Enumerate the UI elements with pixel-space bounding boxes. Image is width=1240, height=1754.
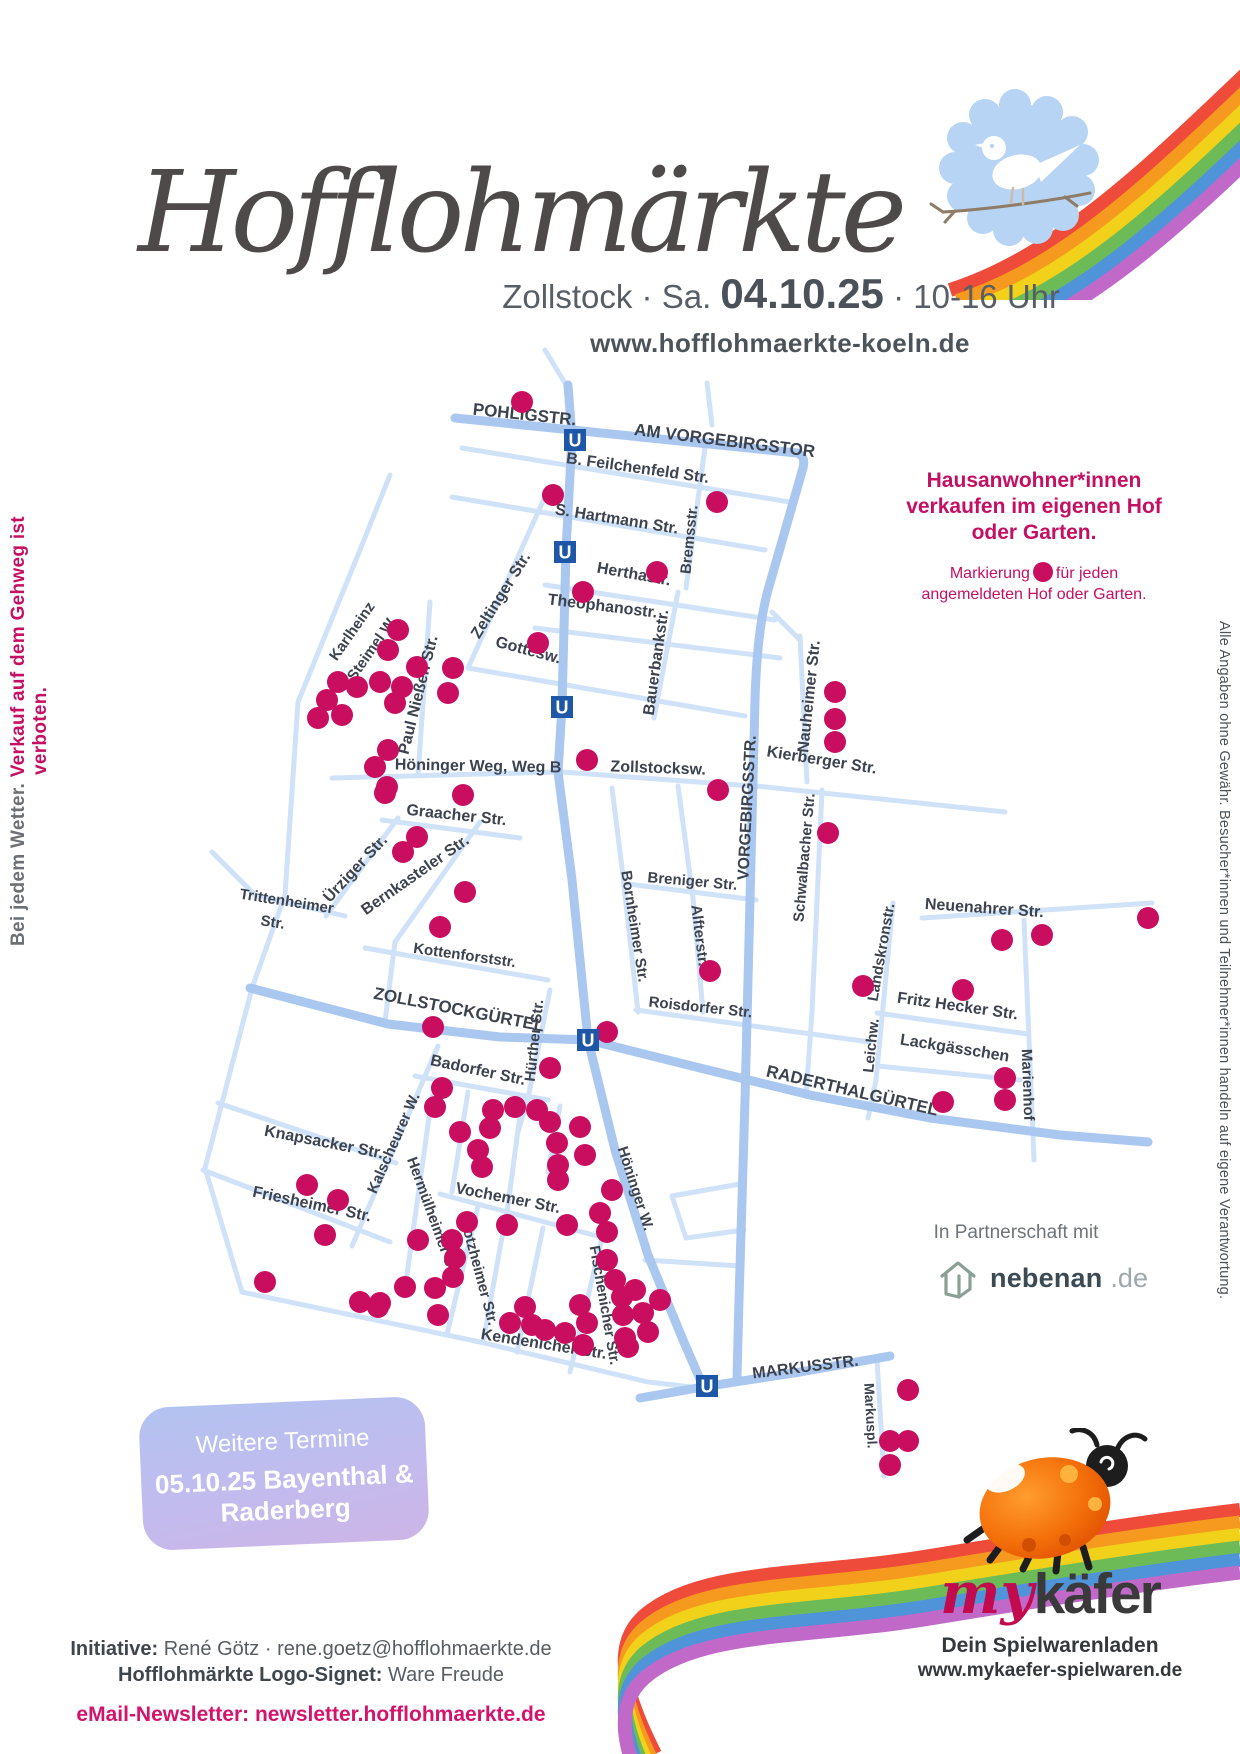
market-dot	[454, 881, 476, 903]
market-dot	[1031, 924, 1053, 946]
market-dot	[932, 1091, 954, 1113]
page-title: Hofflohmärkte	[138, 148, 968, 278]
street-label: AM VORGEBIRGSTOR	[633, 420, 816, 461]
marker-legend: Markierungfür jeden angemeldeten Hof ode…	[900, 562, 1168, 605]
market-dot	[406, 656, 428, 678]
street-label: Schwalbacher Str.	[790, 792, 818, 922]
market-dot	[374, 782, 396, 804]
market-dot	[569, 1116, 591, 1138]
street	[636, 1010, 870, 1042]
next-dates-heading: Weitere Termine	[139, 1422, 426, 1462]
sponsor-tagline: Dein Spielwarenladen	[900, 1634, 1200, 1658]
market-dot	[314, 1224, 336, 1246]
market-dot	[369, 671, 391, 693]
market-dot	[367, 1296, 389, 1318]
market-dot	[437, 682, 459, 704]
market-dot	[596, 1221, 618, 1243]
u-station-letter: U	[559, 543, 572, 563]
market-dot	[574, 1144, 596, 1166]
market-dot	[452, 784, 474, 806]
market-dot	[542, 484, 564, 506]
street	[468, 668, 745, 716]
market-dot	[824, 708, 846, 730]
market-dot	[377, 639, 399, 661]
info-line1: Hausanwohner*innen	[900, 468, 1168, 494]
street-label: Marienhof	[1018, 1049, 1038, 1122]
market-dot	[707, 779, 729, 801]
market-dot	[852, 975, 874, 997]
market-dot	[952, 979, 974, 1001]
market-dot	[307, 707, 329, 729]
market-dot	[511, 391, 533, 413]
sponsor-brand: mykäfer	[900, 1560, 1200, 1627]
next-dates-box: Weitere Termine 05.10.25 Bayenthal & Rad…	[138, 1396, 430, 1551]
market-dot	[407, 1229, 429, 1251]
market-dot	[504, 1096, 526, 1118]
street	[205, 988, 252, 1168]
market-dot	[572, 1334, 594, 1356]
market-dot	[499, 1312, 521, 1334]
street-label: Alfterstr.	[687, 904, 711, 967]
sponsor-brand-suffix: käfer	[1034, 1562, 1160, 1626]
market-dot	[444, 1247, 466, 1269]
street	[686, 1230, 744, 1238]
street-label: Str.	[259, 912, 286, 933]
market-dot	[646, 561, 668, 583]
market-dot	[539, 1057, 561, 1079]
market-dot	[994, 1067, 1016, 1089]
market-dot	[479, 1117, 501, 1139]
event-time: 10-16 Uhr	[913, 278, 1060, 315]
market-dot	[596, 1021, 618, 1043]
market-dot	[527, 632, 549, 654]
market-dot	[576, 1312, 598, 1334]
market-dot	[427, 1304, 449, 1326]
u-station-letter: U	[556, 698, 569, 718]
market-dot	[554, 1322, 576, 1344]
flyer-page: Hofflohmärkte Zollstock · Sa. 04.10.25 ·…	[0, 0, 1240, 1754]
street	[672, 1184, 740, 1196]
market-dot	[327, 1189, 349, 1211]
market-dot	[556, 1214, 578, 1236]
street	[252, 702, 298, 988]
event-date: 04.10.25	[720, 270, 884, 317]
sponsor-website: www.mykaefer-spielwaren.de	[880, 1660, 1220, 1682]
market-dot	[424, 1096, 446, 1118]
street	[756, 786, 1005, 812]
market-dot	[392, 841, 414, 863]
initiative-line: Initiative: René Götz · rene.goetz@hoffl…	[61, 1636, 561, 1662]
street-label: Kierberger Str.	[765, 743, 877, 777]
market-dot	[991, 929, 1013, 951]
market-dot	[346, 676, 368, 698]
event-location: Zollstock	[502, 278, 632, 315]
market-dot	[817, 822, 839, 844]
street-label: Zollstocksw.	[610, 758, 706, 778]
info-line3: oder Garten.	[900, 520, 1168, 546]
market-dot	[649, 1289, 671, 1311]
event-website: www.hofflohmaerkte-koeln.de	[430, 328, 1130, 359]
market-dot	[706, 491, 728, 513]
market-dot	[442, 657, 464, 679]
sponsor-brand-prefix: my	[940, 1560, 1033, 1627]
market-dot	[471, 1156, 493, 1178]
market-dot	[331, 704, 353, 726]
street-label: S. Hartmann Str.	[554, 501, 680, 537]
legend-dot-icon	[1033, 562, 1053, 582]
market-dot	[572, 581, 594, 603]
street-label: Lackgässchen	[899, 1032, 1011, 1066]
street	[772, 612, 800, 640]
market-dot	[612, 1304, 634, 1326]
market-dot	[637, 1321, 659, 1343]
market-dot	[394, 1276, 416, 1298]
market-dot	[539, 1111, 561, 1133]
market-dot	[546, 1132, 568, 1154]
info-line2: verkaufen im eigenen Hof	[900, 494, 1168, 520]
market-dot	[422, 1016, 444, 1038]
event-subtitle: Zollstock · Sa. 04.10.25 · 10-16 Uhr	[300, 270, 1060, 318]
market-dot	[387, 619, 409, 641]
street-label: Knapsacker Str.	[263, 1123, 385, 1163]
market-dot	[547, 1169, 569, 1191]
street-label: Bremsstr.	[677, 504, 701, 575]
street	[707, 383, 712, 425]
street-label: Zeltinger Str.	[468, 550, 534, 642]
u-station-letter: U	[582, 1031, 595, 1051]
street-label: MARKUSSTR.	[751, 1353, 859, 1383]
market-dot	[596, 1249, 618, 1271]
market-dot	[576, 749, 598, 771]
market-dot	[296, 1174, 318, 1196]
street	[1024, 920, 1034, 1160]
market-dot	[364, 756, 386, 778]
market-dot	[601, 1179, 623, 1201]
market-dot	[424, 1277, 446, 1299]
street	[205, 1168, 242, 1292]
u-station-letter: U	[569, 431, 582, 451]
signet-line: Hofflohmärkte Logo-Signet: Ware Freude	[61, 1662, 561, 1688]
street-label: Höninger Weg, Weg B	[395, 757, 562, 777]
street	[672, 1196, 686, 1238]
market-dot	[429, 916, 451, 938]
street	[362, 475, 390, 545]
info-box: Hausanwohner*innen verkaufen im eigenen …	[900, 468, 1168, 605]
market-dot	[1137, 907, 1159, 929]
street	[645, 1260, 740, 1266]
market-dot	[449, 1121, 471, 1143]
market-dot	[824, 731, 846, 753]
newsletter-line: eMail-Newsletter: newsletter.hofflohmaer…	[61, 1702, 561, 1728]
ladybug-icon	[945, 1428, 1155, 1578]
market-dot	[534, 1319, 556, 1341]
market-dot	[496, 1214, 518, 1236]
market-dot	[456, 1211, 478, 1233]
market-dot	[994, 1089, 1016, 1111]
market-dot	[824, 681, 846, 703]
market-dot	[431, 1077, 453, 1099]
footer-credits: Initiative: René Götz · rene.goetz@hoffl…	[61, 1636, 561, 1728]
market-dot	[617, 1336, 639, 1358]
market-dot	[699, 960, 721, 982]
market-dot	[254, 1271, 276, 1293]
market-dot	[624, 1279, 646, 1301]
street-label: B. Feilchenfeld Str.	[565, 450, 710, 487]
market-dot	[384, 692, 406, 714]
market-dot	[589, 1202, 611, 1224]
